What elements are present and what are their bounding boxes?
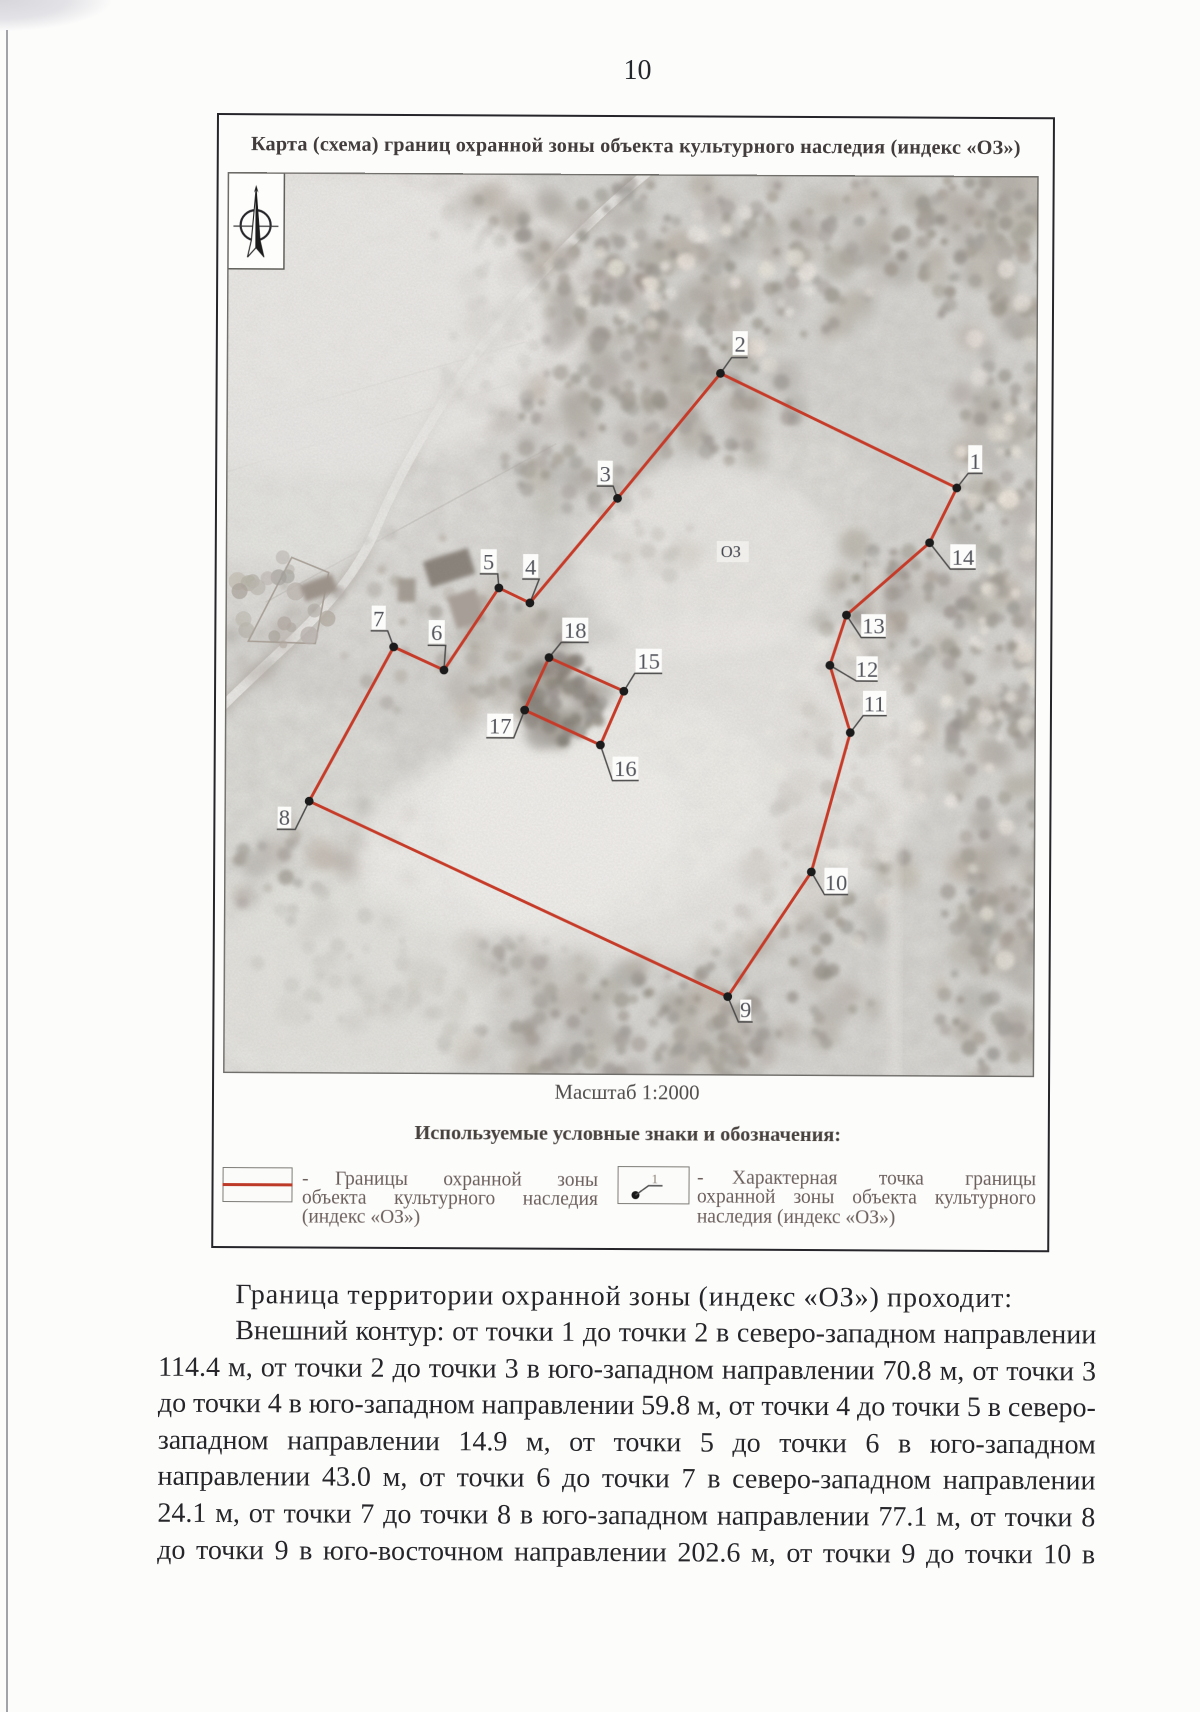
- svg-text:4: 4: [525, 554, 536, 579]
- svg-text:15: 15: [638, 649, 661, 674]
- svg-text:6: 6: [431, 620, 442, 645]
- svg-text:7: 7: [373, 606, 384, 631]
- svg-text:8: 8: [279, 805, 290, 830]
- svg-text:ОЗ: ОЗ: [721, 542, 741, 561]
- svg-text:2: 2: [735, 332, 746, 357]
- svg-text:1: 1: [652, 1171, 659, 1186]
- svg-text:10: 10: [825, 870, 848, 895]
- svg-text:9: 9: [740, 997, 751, 1022]
- svg-text:1: 1: [970, 449, 981, 474]
- svg-text:13: 13: [862, 613, 885, 638]
- svg-text:16: 16: [614, 756, 637, 781]
- svg-text:11: 11: [864, 691, 886, 716]
- svg-text:3: 3: [600, 461, 611, 486]
- svg-text:18: 18: [564, 618, 587, 643]
- svg-text:5: 5: [483, 549, 494, 574]
- svg-text:14: 14: [952, 545, 975, 570]
- svg-text:12: 12: [856, 657, 879, 682]
- svg-text:17: 17: [489, 713, 512, 738]
